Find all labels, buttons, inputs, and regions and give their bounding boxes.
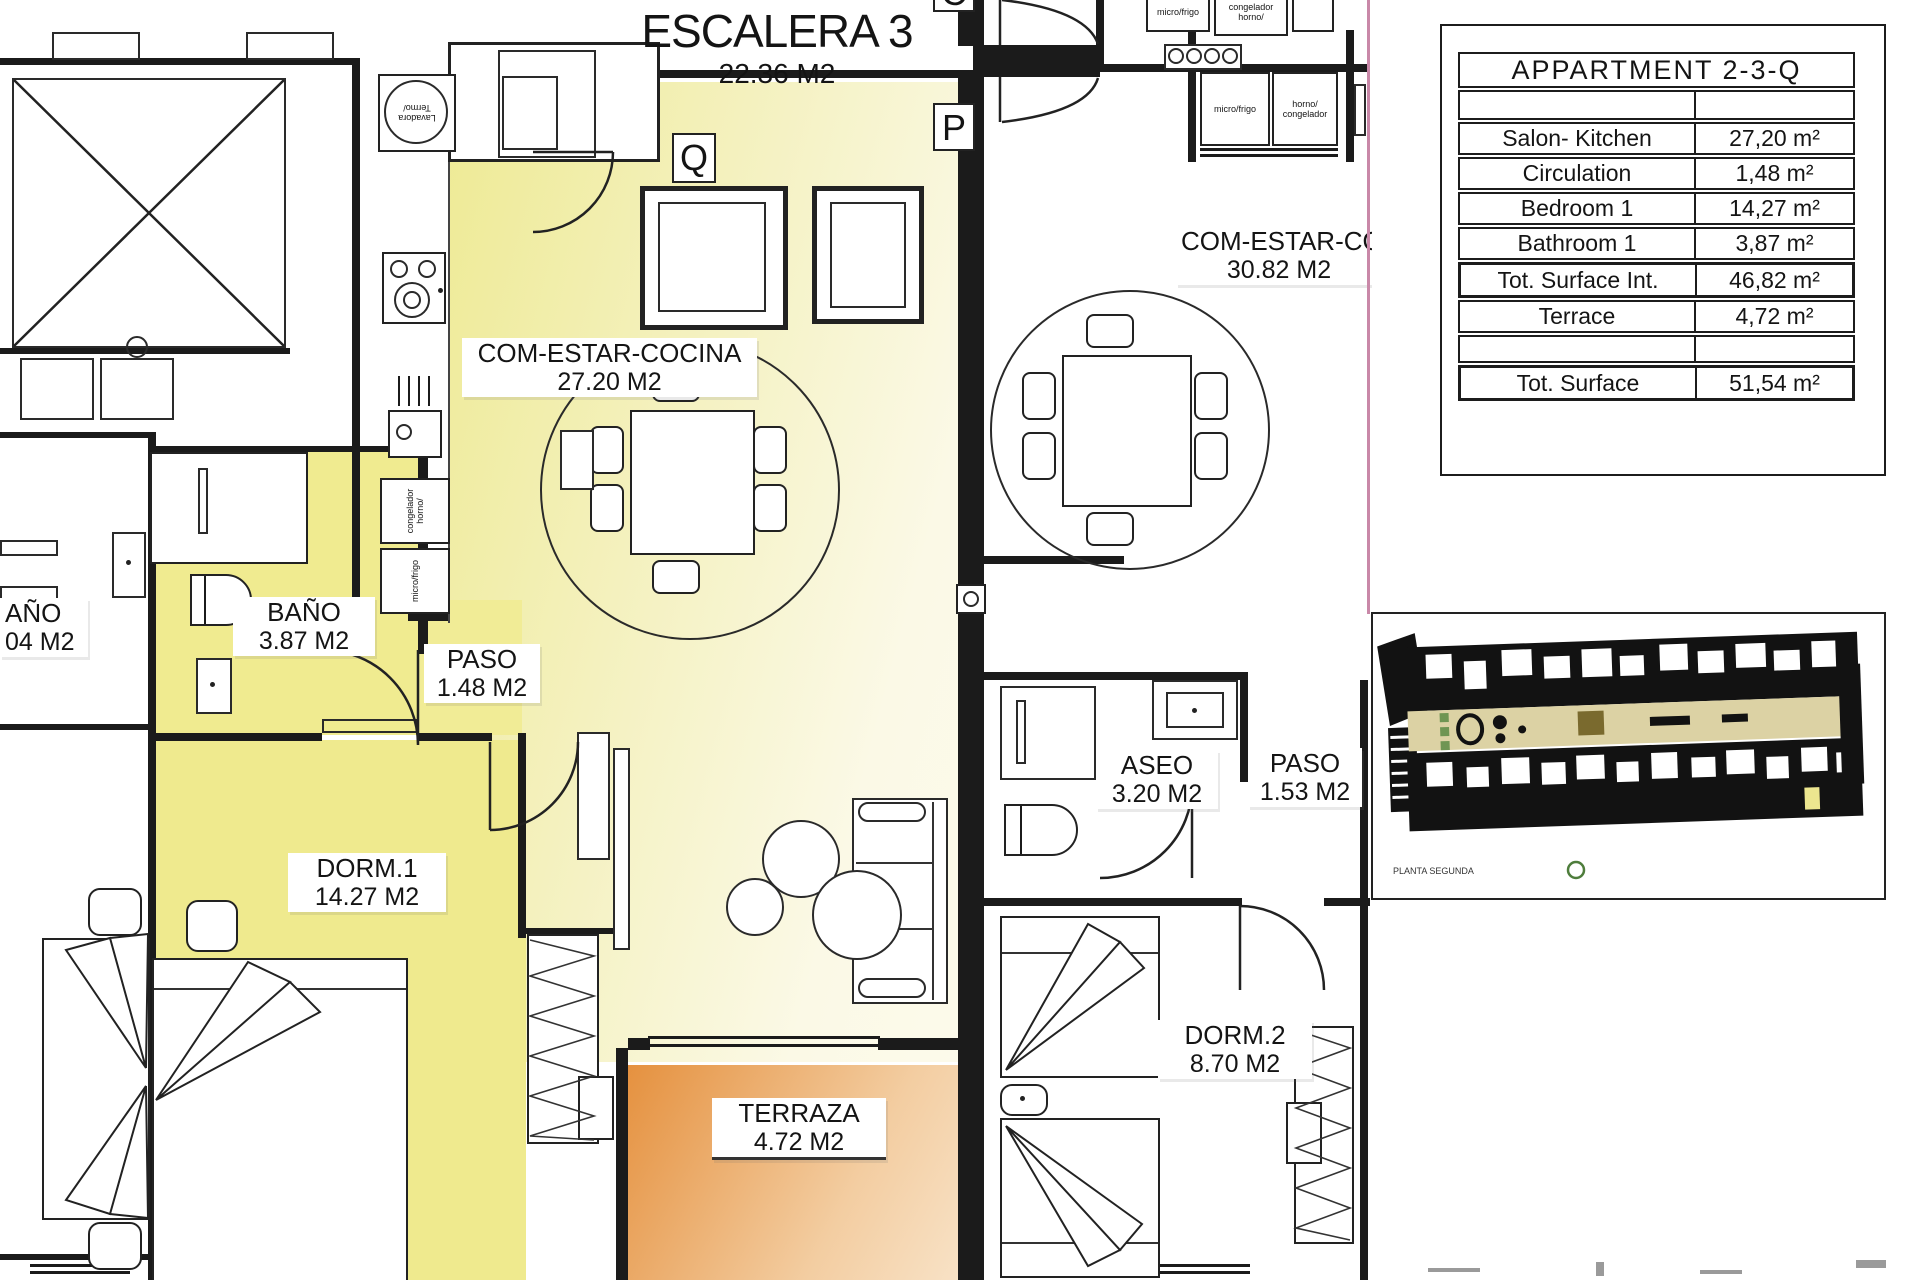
room-label-bedroom2: DORM.2 8.70 M2 (1158, 1020, 1312, 1079)
table-row (1458, 335, 1855, 363)
table-row: Terrace 4,72 m² (1458, 300, 1855, 333)
site-plan-thumbnail: PLANTA SEGUNDA (1371, 612, 1886, 900)
sheet-artifact (1428, 1268, 1480, 1272)
table-row-total-interior: Tot. Surface Int. 46,82 m² (1458, 262, 1855, 298)
room-label-bathroom-left: AÑO 04 M2 (0, 598, 88, 657)
sheet-artifact (1856, 1260, 1886, 1268)
sheet-boundary-line (1367, 0, 1370, 614)
unit-marker-q: Q (672, 133, 716, 183)
bed-fan (156, 962, 320, 1100)
room-label-bedroom1: DORM.1 14.27 M2 (288, 853, 446, 912)
stair-area: 22.36 M2 (612, 58, 942, 90)
bed-fan (66, 934, 148, 1068)
room-label-hall: PASO 1.48 M2 (424, 644, 540, 703)
area-table: APPARTMENT 2-3-Q Salon- Kitchen 27,20 m²… (1458, 52, 1855, 401)
bed-fan (1006, 1126, 1142, 1266)
wardrobe-hatch (530, 940, 594, 1140)
table-row-total-surface: Tot. Surface 51,54 m² (1458, 365, 1855, 401)
room-label-terrace: TERRAZA 4.72 M2 (712, 1098, 886, 1160)
site-plan-caption: PLANTA SEGUNDA (1393, 866, 1474, 876)
table-row: Bedroom 1 14,27 m² (1458, 192, 1855, 225)
area-table-title: APPARTMENT 2-3-Q (1458, 52, 1855, 88)
floorplan-page: Lavadora Termo/ congelador horno/ micro/… (0, 0, 1920, 1280)
table-row (1458, 90, 1855, 120)
room-label-living-p: COM-ESTAR-COC 30.82 M2 (1176, 226, 1372, 285)
room-label-aseo: ASEO 3.20 M2 (1096, 750, 1218, 809)
table-row: Circulation 1,48 m² (1458, 157, 1855, 190)
crossed-box-x (14, 80, 284, 346)
bed-fan (1006, 924, 1144, 1070)
room-label-living: COM-ESTAR-COCINA 27.20 M2 (462, 338, 757, 397)
plan-linework (0, 0, 1372, 1280)
sheet-artifact (1596, 1262, 1604, 1276)
stair-title-block: ESCALERA 3 22.36 M2 (612, 4, 942, 90)
room-label-hall-p: PASO 1.53 M2 (1248, 748, 1362, 807)
table-row: Salon- Kitchen 27,20 m² (1458, 122, 1855, 155)
bed-fan (66, 1086, 148, 1218)
table-row: Bathroom 1 3,87 m² (1458, 227, 1855, 260)
unit-marker-p: P (933, 103, 975, 151)
floor-plan: Lavadora Termo/ congelador horno/ micro/… (0, 0, 1372, 1280)
room-label-bathroom: BAÑO 3.87 M2 (233, 597, 375, 656)
unit-marker-c: C (933, 0, 975, 12)
stair-title: ESCALERA 3 (612, 4, 942, 58)
sheet-artifact (1700, 1270, 1742, 1274)
